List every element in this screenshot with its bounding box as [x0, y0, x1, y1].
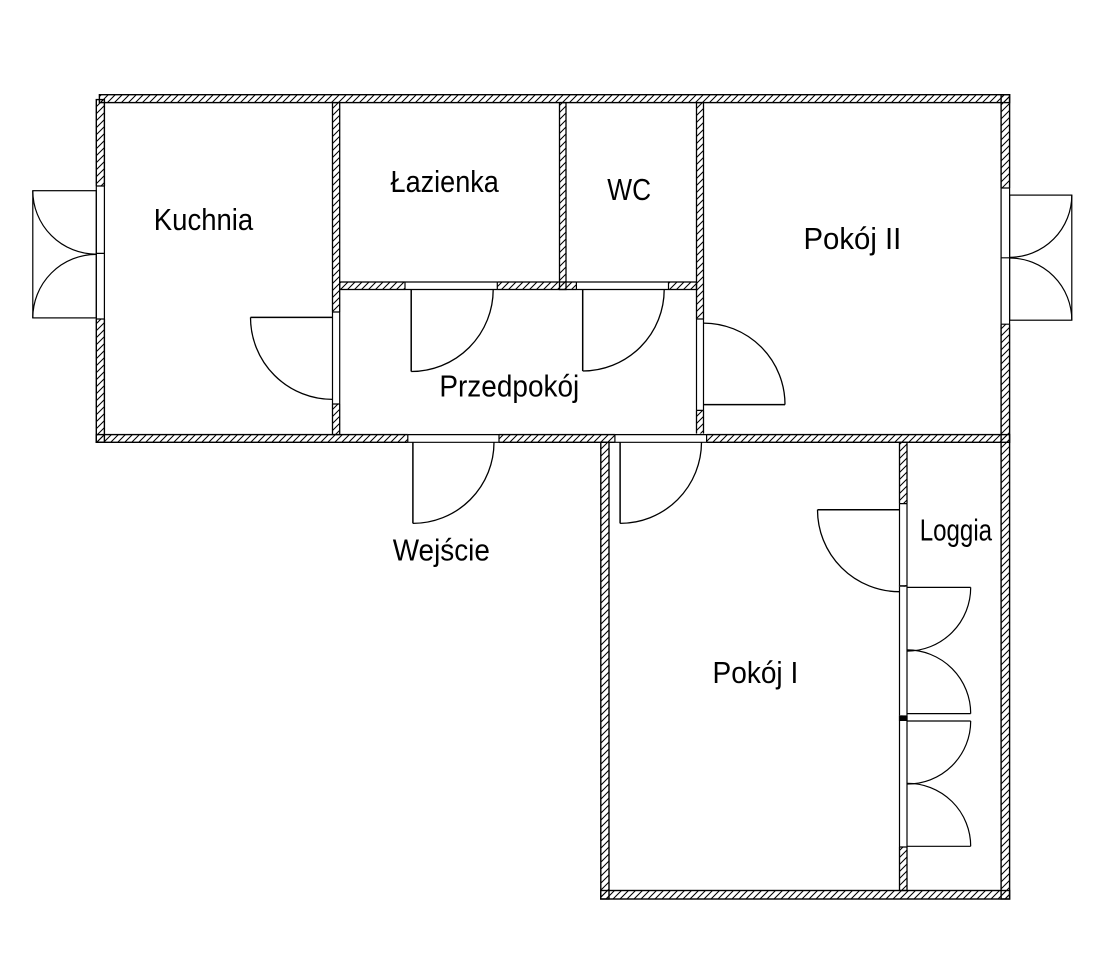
svg-text:Loggia: Loggia	[920, 512, 993, 547]
svg-text:WC: WC	[607, 172, 651, 207]
svg-text:Kuchnia: Kuchnia	[154, 202, 254, 237]
svg-text:Pokój II: Pokój II	[804, 221, 902, 256]
svg-text:Wejście: Wejście	[393, 533, 490, 568]
svg-text:Łazienka: Łazienka	[391, 164, 500, 199]
svg-text:Pokój I: Pokój I	[713, 655, 799, 690]
svg-text:Przedpokój: Przedpokój	[439, 368, 579, 403]
